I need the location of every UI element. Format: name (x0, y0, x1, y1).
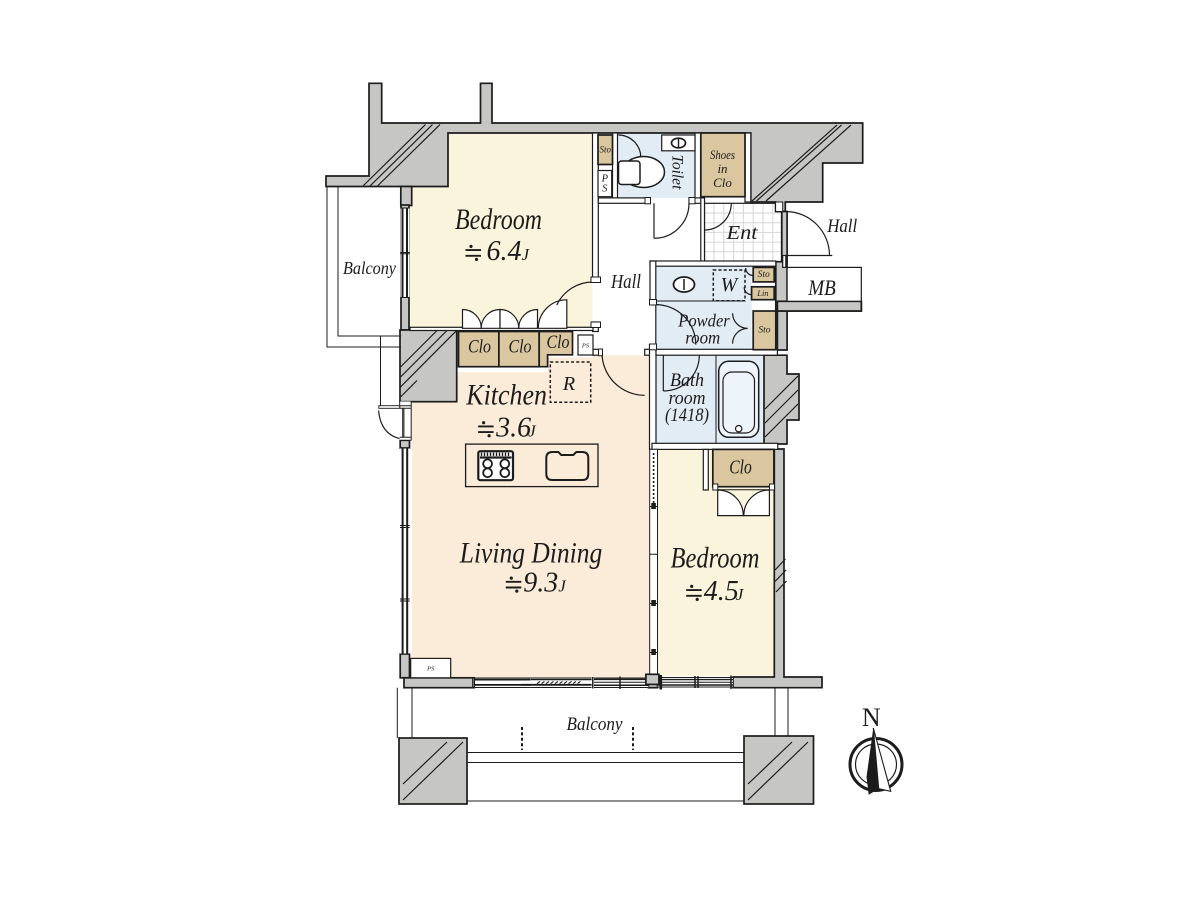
svg-text:Living Dining: Living Dining (459, 537, 602, 570)
svg-text:PS: PS (426, 666, 435, 673)
svg-text:3.6: 3.6 (495, 412, 531, 443)
svg-text:Clo: Clo (729, 457, 752, 478)
svg-text:Sto: Sto (758, 326, 770, 336)
svg-text:room: room (685, 328, 720, 348)
svg-text:S: S (602, 184, 608, 195)
svg-text:Hall: Hall (826, 216, 857, 237)
svg-text:Shoes: Shoes (710, 147, 735, 162)
svg-text:Lin: Lin (756, 288, 768, 298)
svg-text:(1418): (1418) (665, 406, 709, 426)
svg-text:6.4: 6.4 (487, 236, 522, 267)
svg-text:Clo: Clo (509, 337, 532, 358)
svg-text:4.5: 4.5 (704, 576, 739, 607)
svg-text:N: N (862, 703, 881, 732)
svg-text:Balcony: Balcony (343, 258, 397, 278)
svg-text:Hall: Hall (610, 272, 641, 293)
svg-text:W: W (721, 274, 740, 296)
svg-text:Toilet: Toilet (669, 155, 686, 190)
svg-text:Ent: Ent (725, 223, 758, 244)
svg-text:MB: MB (807, 275, 835, 300)
svg-text:Balcony: Balcony (567, 714, 623, 735)
svg-text:Bedroom: Bedroom (455, 203, 542, 236)
svg-text:9.3: 9.3 (523, 568, 558, 599)
svg-text:Clo: Clo (468, 337, 491, 358)
svg-text:Kitchen: Kitchen (465, 378, 546, 411)
svg-text:Sto: Sto (758, 270, 770, 280)
svg-text:in: in (717, 161, 727, 176)
svg-text:Clo: Clo (547, 332, 570, 353)
svg-text:R: R (562, 373, 575, 395)
svg-text:Clo: Clo (713, 175, 732, 190)
svg-text:Bedroom: Bedroom (671, 541, 760, 574)
svg-text:Sto: Sto (600, 145, 612, 155)
svg-text:PS: PS (581, 343, 590, 350)
